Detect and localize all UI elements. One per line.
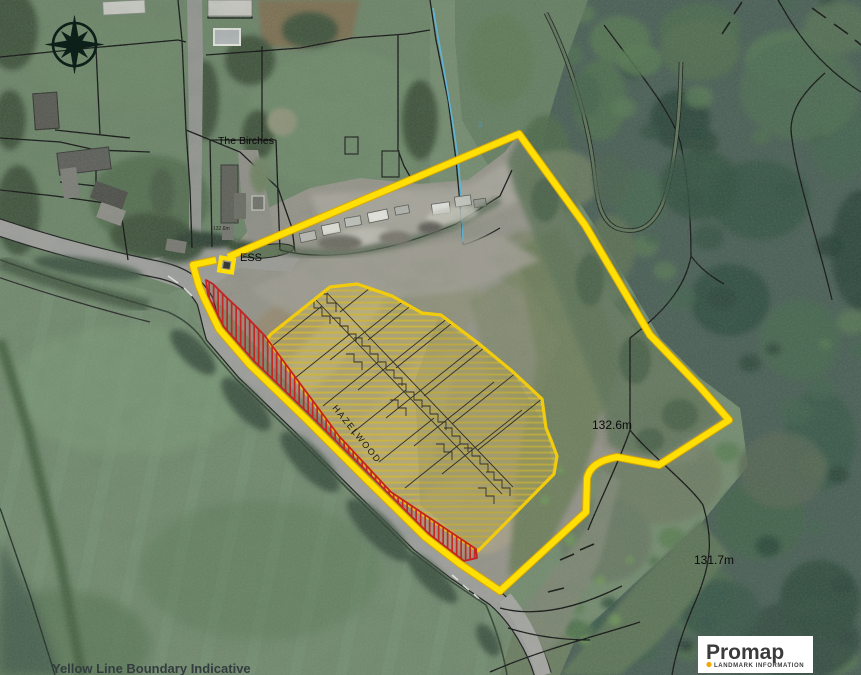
- svg-text:132.6m: 132.6m: [213, 226, 230, 232]
- svg-text:Promap: Promap: [706, 641, 784, 664]
- svg-text:The Birches: The Birches: [218, 135, 274, 147]
- svg-text:131.7m: 131.7m: [694, 553, 734, 567]
- svg-text:132.6m: 132.6m: [592, 418, 632, 432]
- svg-text:LANDMARK INFORMATION: LANDMARK INFORMATION: [714, 663, 804, 669]
- svg-text:Yellow Line Boundary Indicativ: Yellow Line Boundary Indicative: [52, 661, 251, 675]
- svg-text:ESS: ESS: [240, 252, 262, 264]
